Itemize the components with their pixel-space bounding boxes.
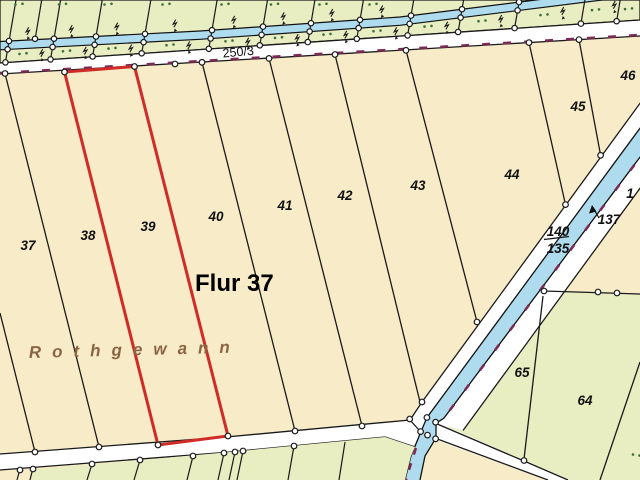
svg-text:44: 44 [503, 167, 520, 182]
svg-text:Flur 37: Flur 37 [195, 270, 274, 297]
svg-text:45: 45 [569, 99, 586, 114]
svg-text:250/3: 250/3 [222, 44, 254, 61]
svg-text:41: 41 [276, 198, 292, 213]
svg-text:42: 42 [336, 188, 353, 203]
svg-text:1: 1 [626, 186, 634, 201]
svg-text:64: 64 [577, 393, 593, 408]
svg-text:39: 39 [140, 219, 156, 234]
svg-text:40: 40 [207, 209, 224, 224]
svg-text:137: 137 [598, 212, 622, 227]
svg-text:135: 135 [547, 241, 570, 256]
svg-text:37: 37 [20, 238, 37, 253]
svg-text:38: 38 [80, 228, 96, 243]
svg-text:46: 46 [619, 68, 636, 83]
svg-text:65: 65 [514, 365, 530, 380]
svg-text:43: 43 [409, 178, 426, 193]
